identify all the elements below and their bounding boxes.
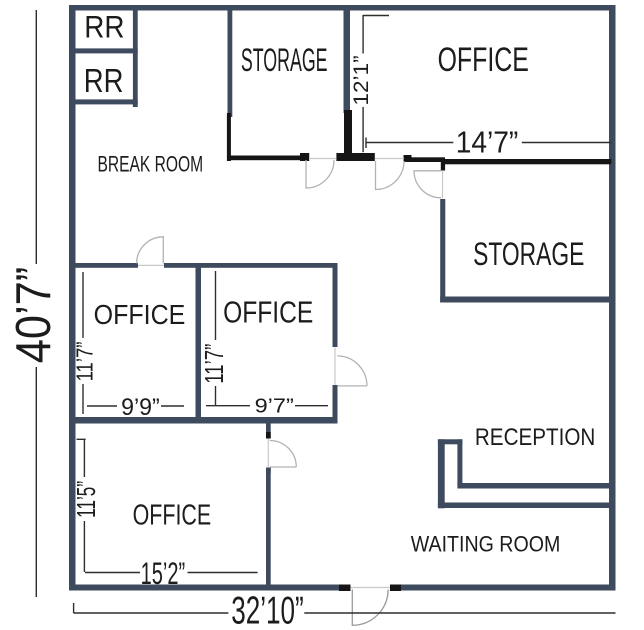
svg-text:OFFICE: OFFICE [94,299,186,330]
svg-text:OFFICE: OFFICE [438,42,529,80]
svg-text:9’7”: 9’7” [255,394,294,417]
svg-text:40’7”: 40’7” [5,267,60,363]
svg-text:STORAGE: STORAGE [241,41,328,78]
svg-text:RECEPTION: RECEPTION [475,424,595,451]
svg-text:OFFICE: OFFICE [133,499,212,531]
svg-text:15’2”: 15’2” [141,555,185,591]
svg-text:12’1”: 12’1” [349,55,373,105]
svg-text:OFFICE: OFFICE [223,295,313,329]
svg-text:11’7”: 11’7” [199,344,229,384]
svg-text:11’7”: 11’7” [73,341,98,381]
svg-text:WAITING ROOM: WAITING ROOM [411,532,561,556]
svg-text:RR: RR [84,10,124,45]
svg-text:STORAGE: STORAGE [473,236,584,272]
svg-text:11’5”: 11’5” [71,481,101,518]
svg-text:BREAK ROOM: BREAK ROOM [97,153,203,177]
svg-text:14’7”: 14’7” [456,125,519,159]
svg-text:RR: RR [84,63,124,100]
svg-text:9’9”: 9’9” [121,395,160,422]
svg-text:32’10”: 32’10” [231,588,304,630]
